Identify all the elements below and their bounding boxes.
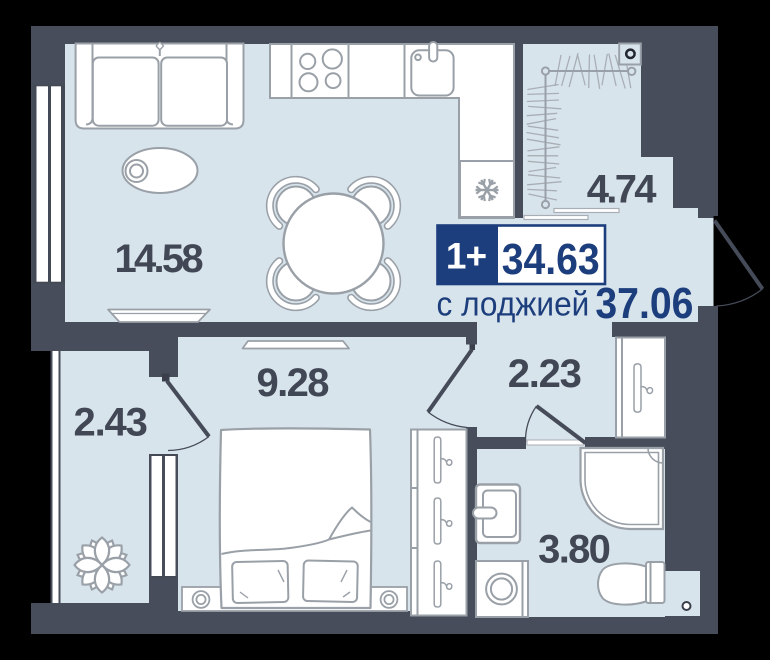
svg-text:34.63: 34.63 [502, 234, 600, 284]
svg-text:9.28: 9.28 [256, 361, 329, 405]
svg-text:14.58: 14.58 [115, 237, 204, 281]
svg-text:37.06: 37.06 [595, 278, 693, 328]
svg-text:2.23: 2.23 [508, 352, 581, 396]
svg-text:2.43: 2.43 [74, 401, 147, 445]
svg-text:с лоджией: с лоджией [437, 284, 590, 322]
svg-text:3.80: 3.80 [538, 528, 610, 572]
svg-text:1+: 1+ [446, 236, 487, 277]
svg-text:4.74: 4.74 [587, 168, 658, 212]
